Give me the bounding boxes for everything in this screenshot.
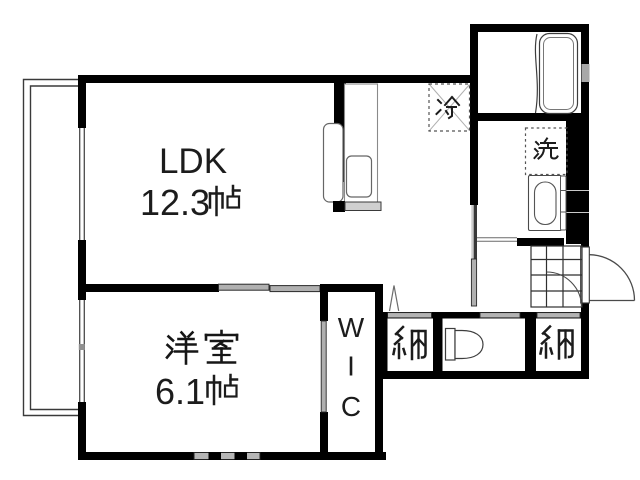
svg-text:W: W [338,312,365,343]
svg-text:I: I [347,351,355,382]
svg-text:C: C [341,391,361,422]
svg-text:12.3: 12.3 [140,182,210,223]
svg-text:LDK: LDK [159,142,227,181]
svg-text:6.1: 6.1 [155,371,205,412]
